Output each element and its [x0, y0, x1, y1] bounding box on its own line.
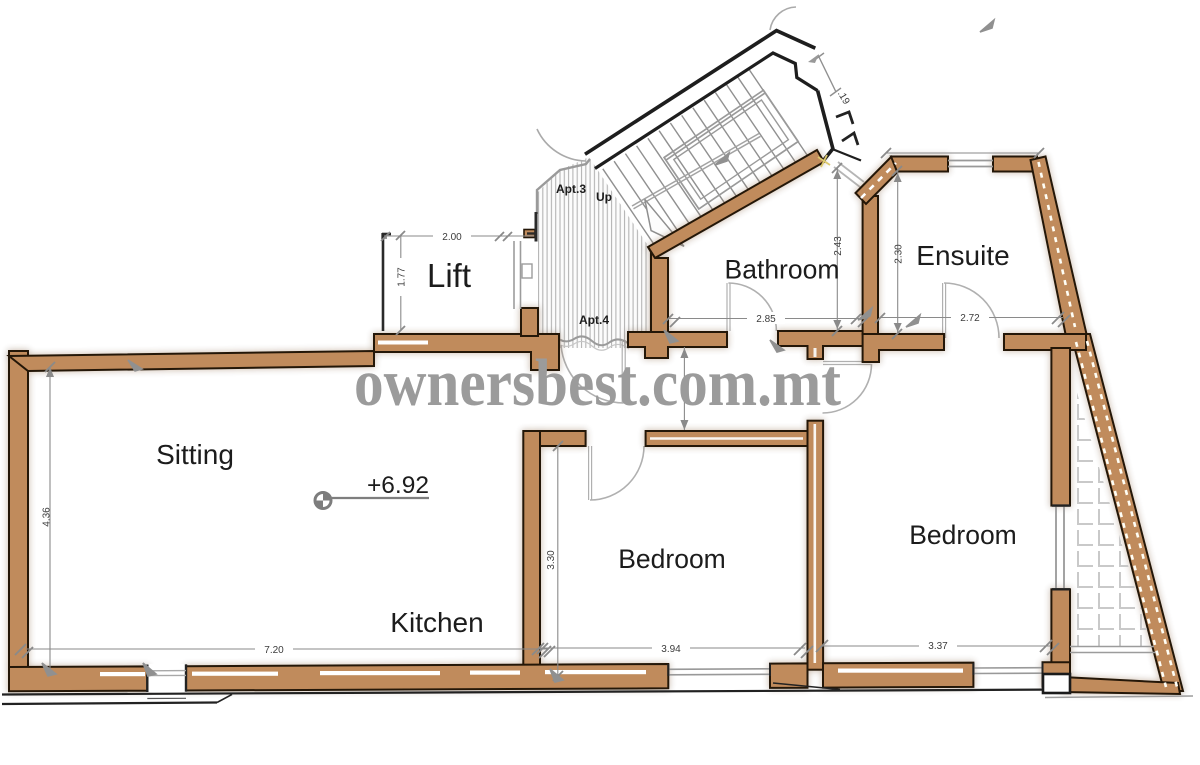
svg-text:Apt.3: Apt.3: [556, 182, 586, 196]
svg-text:3.37: 3.37: [928, 641, 948, 652]
svg-text:ownersbest.com.mt: ownersbest.com.mt: [354, 346, 842, 420]
svg-text:7.20: 7.20: [264, 645, 284, 656]
svg-text:Up: Up: [596, 190, 612, 204]
svg-text:2.85: 2.85: [756, 314, 776, 325]
svg-text:Bedroom: Bedroom: [618, 544, 726, 574]
svg-text:Sitting: Sitting: [156, 439, 234, 470]
svg-text:Bedroom: Bedroom: [909, 520, 1017, 550]
svg-text:3.30: 3.30: [546, 550, 557, 570]
svg-text:Kitchen: Kitchen: [390, 607, 483, 638]
svg-text:Bathroom: Bathroom: [725, 255, 840, 285]
svg-text:Apt.4: Apt.4: [579, 313, 609, 327]
svg-text:2.43: 2.43: [833, 236, 844, 256]
svg-text:2.72: 2.72: [960, 313, 980, 324]
svg-text:+6.92: +6.92: [367, 472, 429, 499]
svg-text:4.36: 4.36: [42, 507, 53, 527]
svg-text:2.00: 2.00: [442, 232, 462, 243]
svg-text:3.94: 3.94: [661, 644, 681, 655]
svg-text:2.30: 2.30: [894, 244, 905, 264]
svg-text:Ensuite: Ensuite: [916, 240, 1009, 271]
svg-text:Lift: Lift: [427, 257, 471, 294]
svg-text:1.77: 1.77: [397, 267, 408, 287]
